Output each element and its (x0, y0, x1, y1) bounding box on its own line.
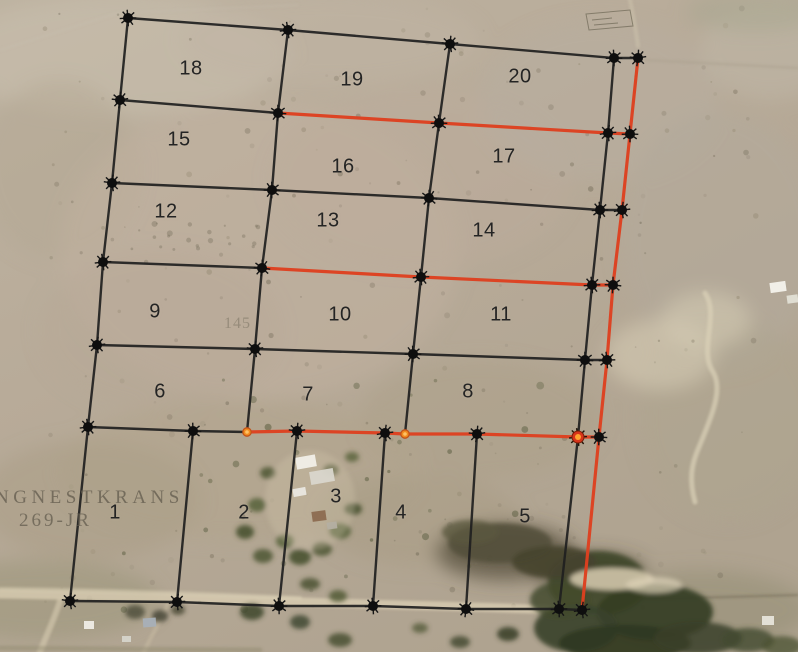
farm-name-label-line1: NGNESTKRANS (0, 487, 184, 509)
parcel-label-16: 16 (331, 156, 354, 179)
parcel-label-4: 4 (395, 502, 407, 525)
parcel-label-12: 12 (154, 201, 177, 224)
parcel-label-5: 5 (519, 506, 531, 529)
parcel-label-9: 9 (149, 301, 161, 324)
parcel-labels-layer: 1819201516171213149101167812345 (0, 0, 798, 652)
parcel-label-20: 20 (508, 66, 531, 89)
parcel-label-3: 3 (330, 486, 342, 509)
parcel-label-10: 10 (328, 304, 351, 327)
parcel-label-14: 14 (472, 220, 495, 243)
parcel-label-15: 15 (167, 129, 190, 152)
parcel-label-2: 2 (238, 502, 250, 525)
parcel-label-19: 19 (340, 69, 363, 92)
map-viewport[interactable]: 1819201516171213149101167812345 NGNESTKR… (0, 0, 798, 652)
parcel-label-8: 8 (462, 381, 474, 404)
parcel-label-18: 18 (179, 58, 202, 81)
parcel-label-13: 13 (316, 210, 339, 233)
parcel-label-6: 6 (154, 381, 166, 404)
parcel-label-11: 11 (490, 304, 512, 327)
parcel-label-7: 7 (302, 384, 314, 407)
parcel-label-17: 17 (492, 146, 515, 169)
farm-name-label-line2: 269-JR (19, 510, 92, 532)
faint-map-number-label: 145 (224, 315, 251, 333)
